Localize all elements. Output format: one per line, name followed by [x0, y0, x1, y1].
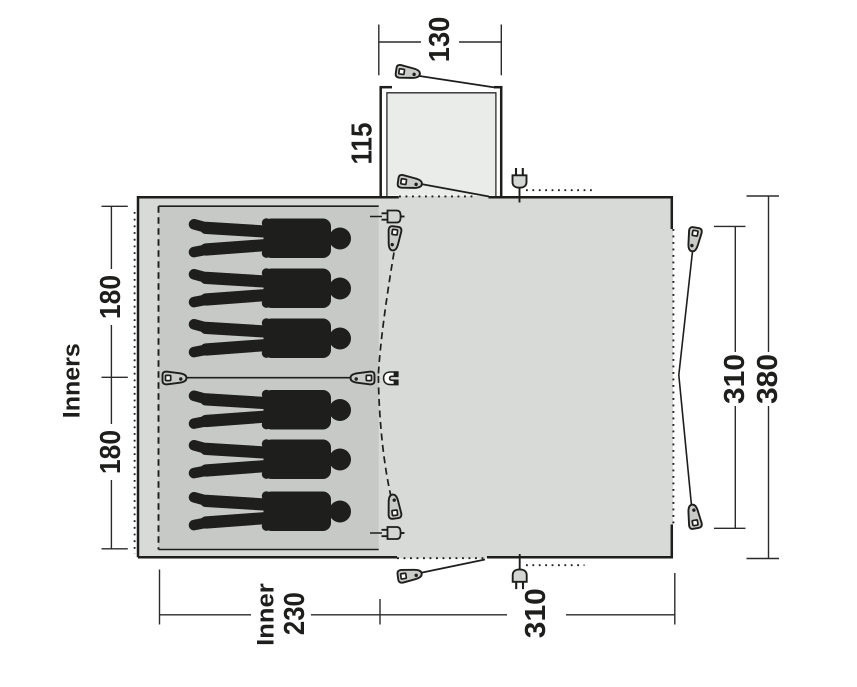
svg-text:180: 180 — [95, 430, 127, 474]
svg-text:180: 180 — [95, 275, 127, 319]
svg-text:230: 230 — [279, 592, 311, 635]
svg-text:115: 115 — [346, 122, 378, 164]
svg-text:Inner: Inner — [253, 583, 280, 646]
svg-text:310: 310 — [719, 354, 751, 404]
svg-text:130: 130 — [424, 17, 456, 63]
svg-text:310: 310 — [520, 588, 552, 638]
svg-text:Inners: Inners — [59, 343, 86, 418]
svg-text:380: 380 — [752, 354, 784, 404]
